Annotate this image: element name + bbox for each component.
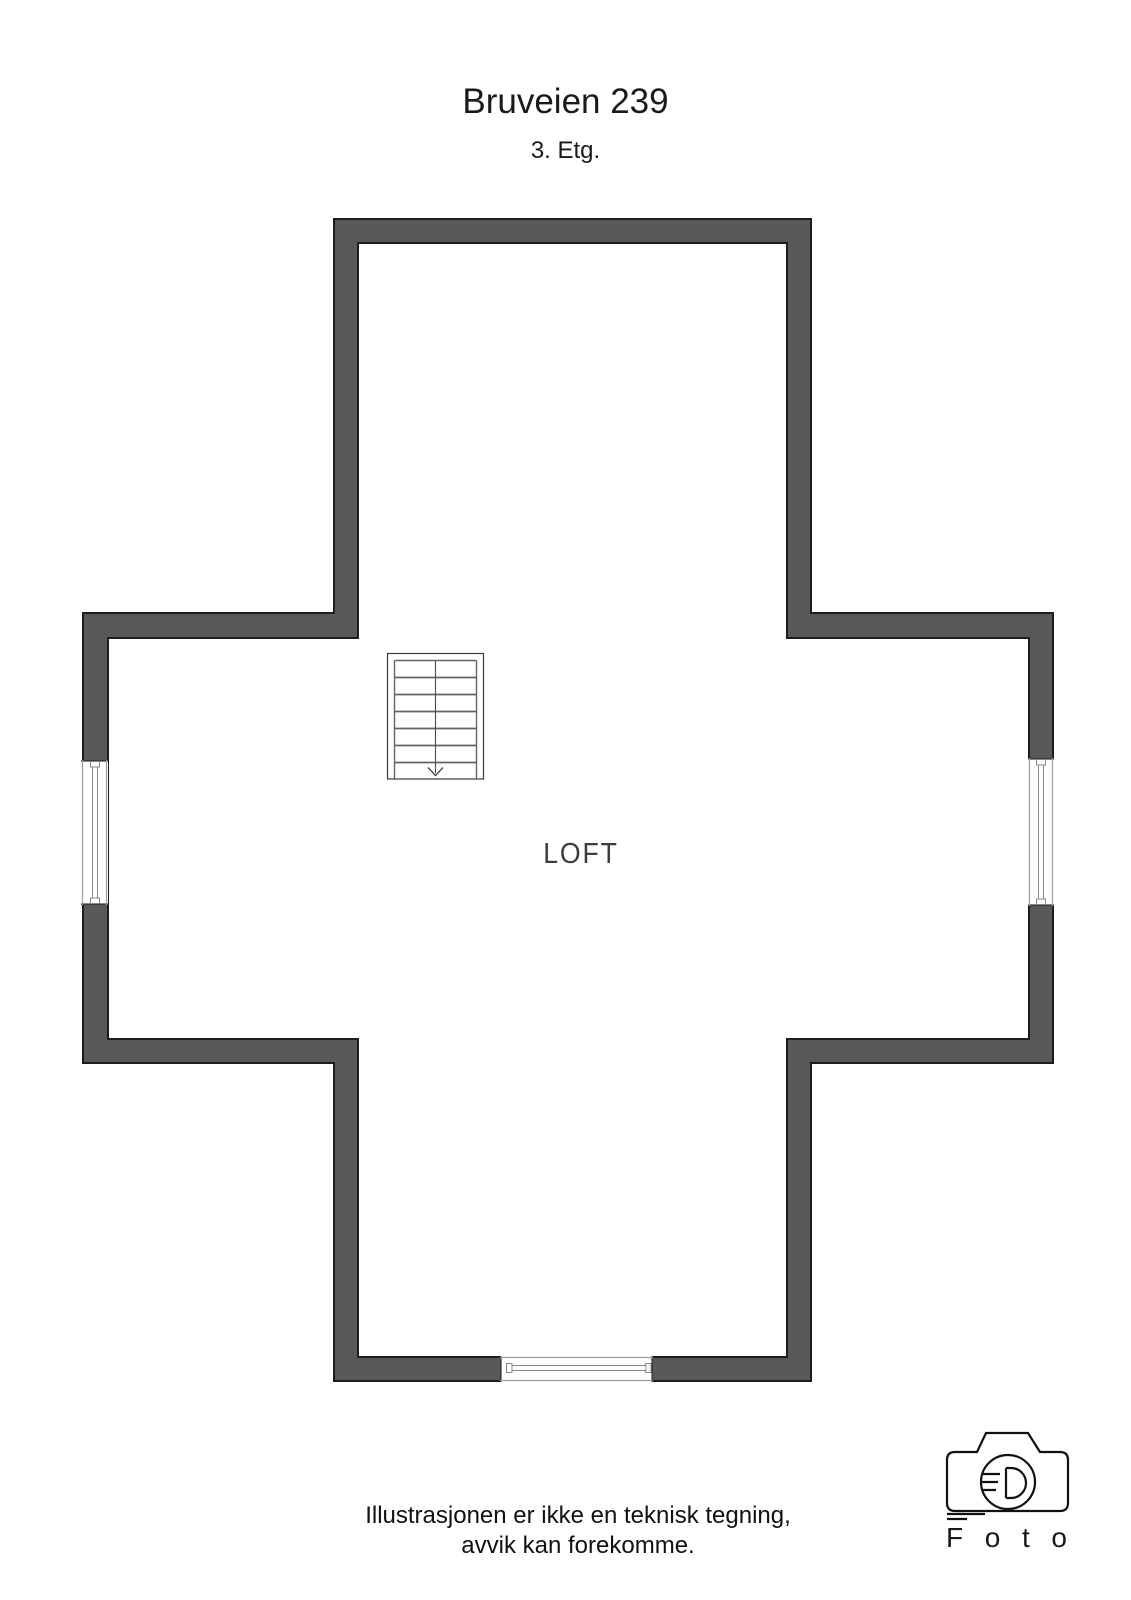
room-label-loft: LOFT [543,838,619,871]
window-right-icon [1028,758,1054,906]
window-bottom-icon [500,1356,653,1382]
logo: Foto [935,1418,1080,1558]
staircase-icon [388,654,484,780]
floorplan-page: Bruveien 239 3. Etg. [0,0,1131,1600]
disclaimer-line-1: Illustrasjonen er ikke en teknisk tegnin… [365,1501,791,1531]
disclaimer: Illustrasjonen er ikke en teknisk tegnin… [365,1501,791,1561]
disclaimer-line-2: avvik kan forekomme. [365,1531,791,1561]
floor-plan-drawing [0,0,1131,1600]
camera-icon [947,1433,1068,1519]
logo-text: Foto [946,1522,1067,1553]
window-left-icon [81,760,108,905]
walls [83,219,1053,1381]
